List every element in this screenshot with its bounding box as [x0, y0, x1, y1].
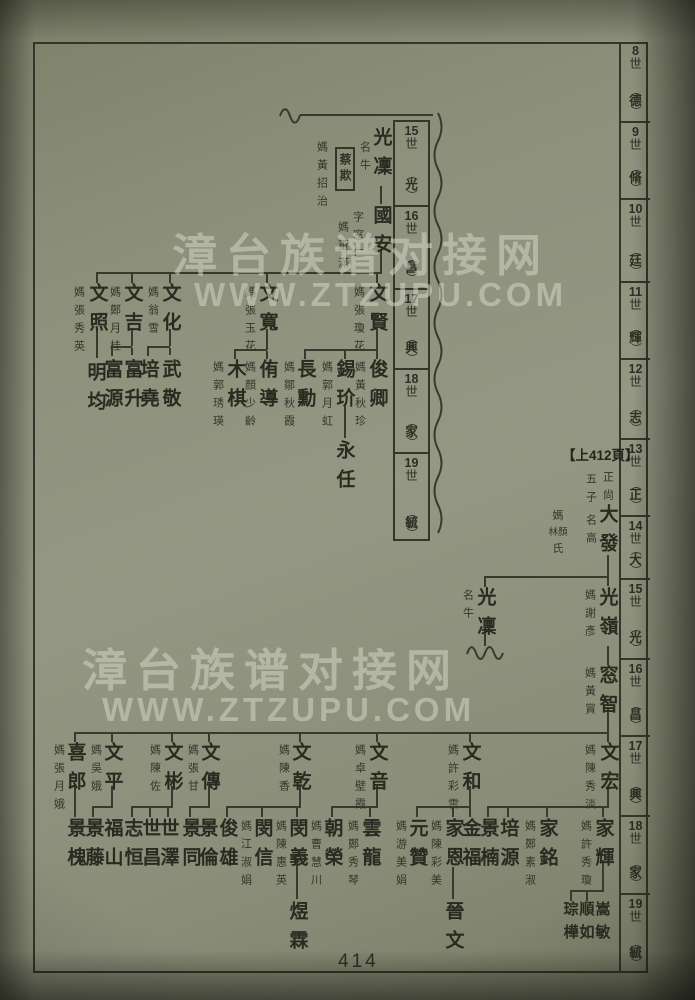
scanned-genealogy-photo: 8世（德）9世（脩）10世（廷）11世（輝）12世（志）13世（正）14世（大）… [0, 0, 695, 1000]
continuation-wavy-lines [0, 0, 695, 1000]
vertical-wavy-line [435, 113, 442, 533]
top-left-squiggle [280, 109, 300, 122]
mid-squiggle [467, 647, 503, 659]
genealogy-page: 8世（德）9世（脩）10世（廷）11世（輝）12世（志）13世（正）14世（大）… [0, 0, 695, 1000]
